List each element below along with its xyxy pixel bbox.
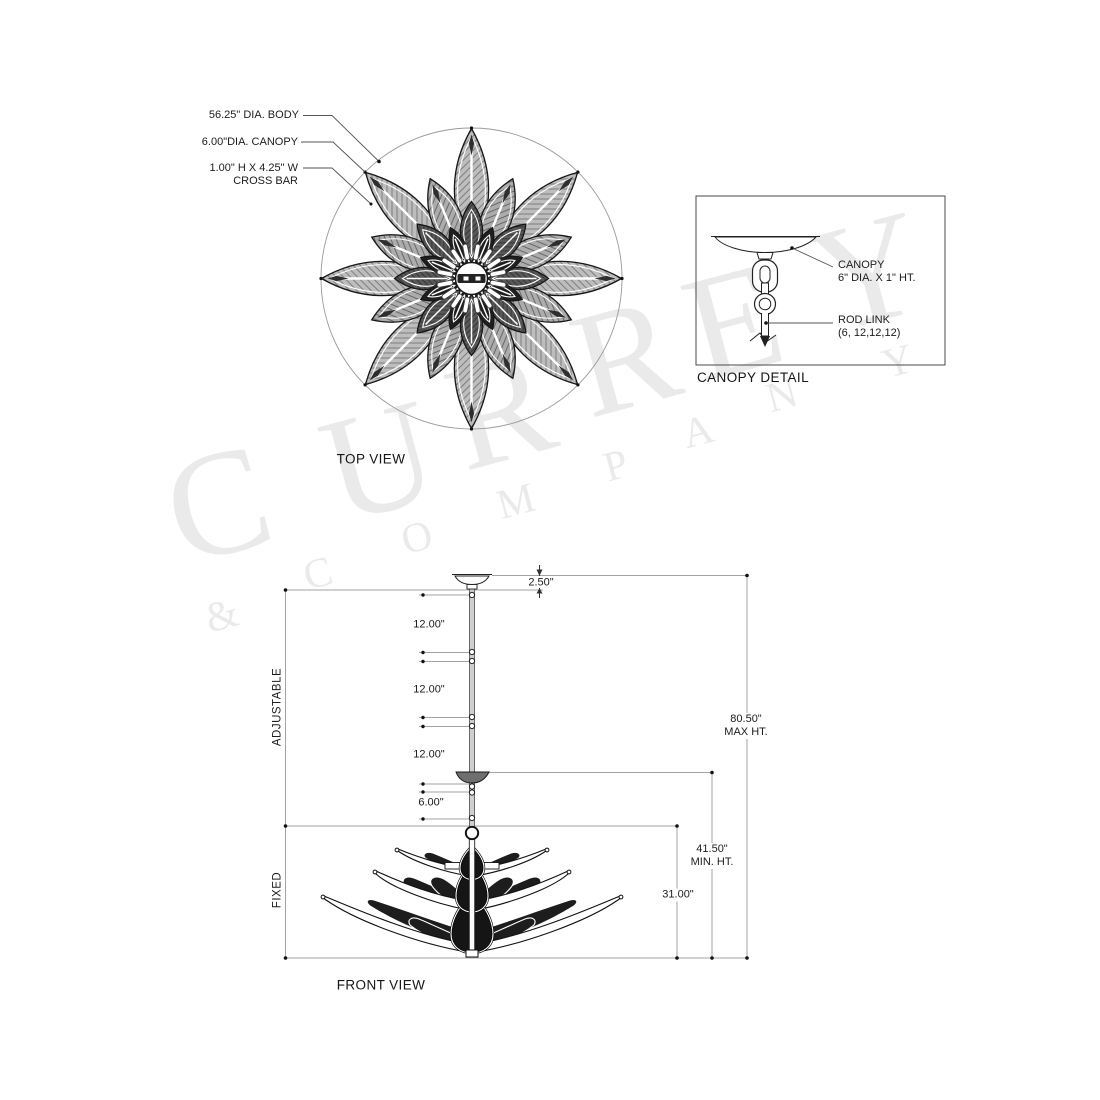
dim-segment-2: 12.00" — [413, 684, 444, 697]
dimension-dot — [421, 660, 424, 663]
rod-arrow — [760, 336, 770, 347]
body-side — [474, 848, 623, 952]
front-view-title: FRONT VIEW — [337, 979, 426, 992]
adjustable-label: ADJUSTABLE — [272, 668, 285, 746]
canopy-label-text: CANOPY — [838, 259, 916, 272]
canopy-leader — [792, 248, 833, 267]
blade-tip — [321, 895, 325, 899]
canopy-dish — [715, 237, 816, 253]
dim-fixed-height: 31.00" — [659, 889, 696, 902]
canopy-neck — [757, 253, 773, 260]
leader-dot — [764, 321, 768, 325]
dimension-dot — [421, 716, 424, 719]
leaf-tip-dot — [620, 277, 623, 280]
dimension-dot — [421, 651, 424, 654]
dimension-dot — [284, 588, 288, 592]
dim-canopy-drop: 2.50" — [528, 577, 553, 590]
cross-bar-notch — [464, 277, 469, 281]
rod — [762, 313, 769, 336]
finial-base — [466, 950, 478, 957]
dimension-dot — [745, 574, 749, 578]
callout-crossbar-line2: CROSS BAR — [150, 175, 298, 188]
hanging-rod — [470, 588, 475, 836]
rodlink-label-text: ROD LINK — [838, 314, 900, 327]
rodlink-values-text: (6, 12,12,12) — [838, 327, 900, 340]
min-height-value: 41.50" — [691, 843, 734, 856]
rod-knob — [469, 723, 474, 728]
rod-knob — [469, 658, 474, 663]
canopy-detail-title: CANOPY DETAIL — [697, 371, 809, 384]
dim-min-height: 41.50" MIN. HT. — [688, 843, 737, 869]
callout-body-diameter: 56.25" DIA. BODY — [150, 109, 299, 122]
max-height-text: MAX HT. — [724, 726, 767, 739]
dimension-dot — [421, 725, 424, 728]
dim-segment-4: 6.00" — [418, 797, 443, 810]
rod-knob — [469, 784, 474, 789]
dimension-dot — [421, 782, 424, 785]
callout-crossbar-line1: 1.00" H X 4.25" W — [150, 162, 298, 175]
callout-canopy-diameter: 6.00"DIA. CANOPY — [150, 136, 298, 149]
dim-segment-3: 12.00" — [413, 749, 444, 762]
mid-canopy — [456, 772, 489, 783]
min-height-text: MIN. HT. — [691, 856, 734, 869]
top-view-leader-lines — [301, 116, 379, 205]
canopy-size-text: 6" DIA. X 1" HT. — [838, 272, 916, 285]
rod-knob — [469, 790, 474, 795]
top-canopy — [455, 576, 489, 585]
top-view-title: TOP VIEW — [337, 453, 406, 466]
dim-max-height: 80.50" MAX HT. — [721, 713, 770, 739]
blade-tip — [545, 848, 549, 852]
leader-crossbar — [303, 168, 371, 204]
dimension-dot — [675, 956, 679, 960]
dimension-dot — [421, 593, 424, 596]
rod-ring-inner — [759, 298, 771, 310]
canopy-detail-canopy-label: CANOPY 6" DIA. X 1" HT. — [838, 259, 916, 285]
center-stem — [469, 838, 474, 951]
leader-dot — [377, 160, 381, 164]
leader-body — [303, 116, 379, 162]
dim-segment-1: 12.00" — [413, 619, 444, 632]
dimension-dot — [284, 956, 288, 960]
dimension-dot — [710, 956, 714, 960]
cross-bar — [458, 274, 486, 283]
front-view-fixture — [321, 575, 623, 958]
rod-knob — [469, 714, 474, 719]
canopy-stem — [467, 585, 477, 590]
leaf-tip-dot — [319, 277, 322, 280]
hang-loop-inner — [760, 266, 770, 283]
rod-knob — [469, 649, 474, 654]
leaf-tip-dot — [470, 427, 473, 430]
max-height-value: 80.50" — [724, 713, 767, 726]
dimension-dot — [745, 956, 749, 960]
dimension-dot — [421, 817, 424, 820]
cross-bar-notch — [476, 277, 481, 281]
rod-knob — [469, 592, 474, 597]
blade-tip — [619, 895, 623, 899]
dimension-dot — [710, 771, 714, 775]
blade-tip — [395, 848, 399, 852]
hang-ring — [466, 827, 478, 839]
rod-knob — [469, 815, 474, 820]
dimension-dot — [421, 790, 424, 793]
canopy-detail-rodlink-label: ROD LINK (6, 12,12,12) — [838, 314, 900, 340]
leaf-tip-dot — [470, 126, 473, 129]
chandelier-spec-sheet: CURREY&COMPANY — [0, 0, 1100, 1100]
leader-dot — [370, 203, 373, 206]
blade-tip — [567, 870, 571, 874]
fixed-label: FIXED — [272, 872, 285, 908]
leader-dot — [790, 246, 794, 250]
body-side — [321, 848, 470, 952]
leader-canopy — [301, 142, 365, 172]
blade-tip — [373, 870, 377, 874]
flower-leaves — [319, 126, 623, 430]
top-view-drawing — [301, 116, 624, 431]
callout-crossbar: 1.00" H X 4.25" W CROSS BAR — [150, 162, 298, 188]
dimension-dot — [284, 824, 288, 828]
dimension-dot — [675, 824, 679, 828]
